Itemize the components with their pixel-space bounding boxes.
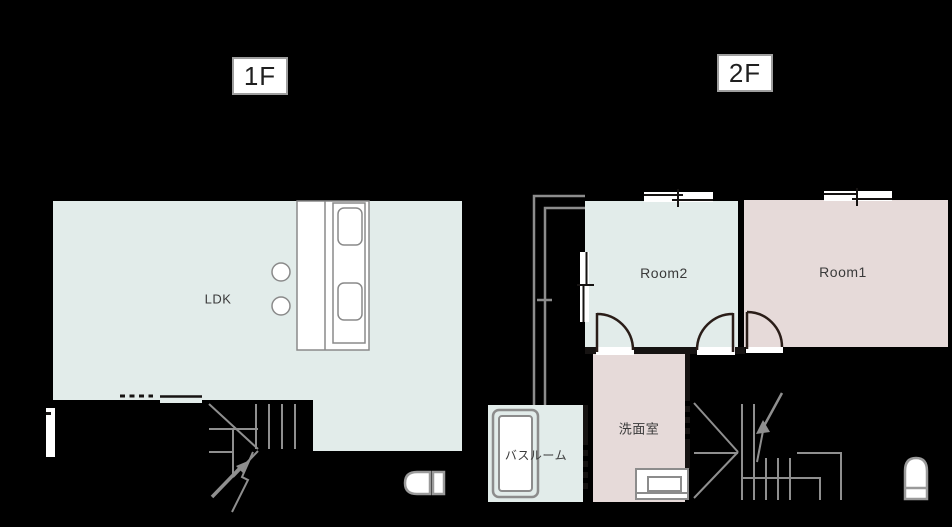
balcony [534, 196, 585, 405]
stairs-arrow-shaft [212, 468, 240, 497]
ldk-label: LDK [205, 292, 232, 307]
staircase-2f [694, 393, 841, 500]
stairs-arrowhead-icon [236, 461, 248, 473]
stairs-up-path [757, 431, 763, 462]
door-opening [697, 347, 735, 355]
floor1-label: 1F [244, 61, 276, 91]
ldk-room-extension [313, 400, 462, 451]
room1-label: Room1 [819, 264, 867, 280]
entrance-door [46, 408, 55, 457]
toilet-2f [905, 458, 927, 499]
room2-label: Room2 [640, 265, 688, 281]
floor1-label-box: 1F [232, 57, 288, 95]
floorplan-canvas: 1F 2F [0, 0, 952, 527]
bathroom-label: バスルーム [505, 447, 567, 464]
stairs-arrowhead-icon [756, 420, 770, 434]
floor2-label-box: 2F [717, 54, 773, 92]
washroom-label: 洗面室 [619, 419, 660, 438]
stairs-up-path [232, 452, 253, 512]
toilet-1f [405, 472, 444, 494]
toilet-bowl-icon [905, 458, 927, 499]
ldk-room [53, 201, 462, 400]
stairs-arrow-shaft [764, 393, 782, 426]
toilet-tank [433, 472, 444, 494]
staircase-1f [209, 404, 295, 512]
toilet-bowl-icon [405, 472, 430, 494]
door-opening [746, 347, 783, 353]
bathroom-wall [583, 405, 588, 490]
floor2-label: 2F [729, 58, 761, 88]
washroom-wall [685, 352, 690, 469]
